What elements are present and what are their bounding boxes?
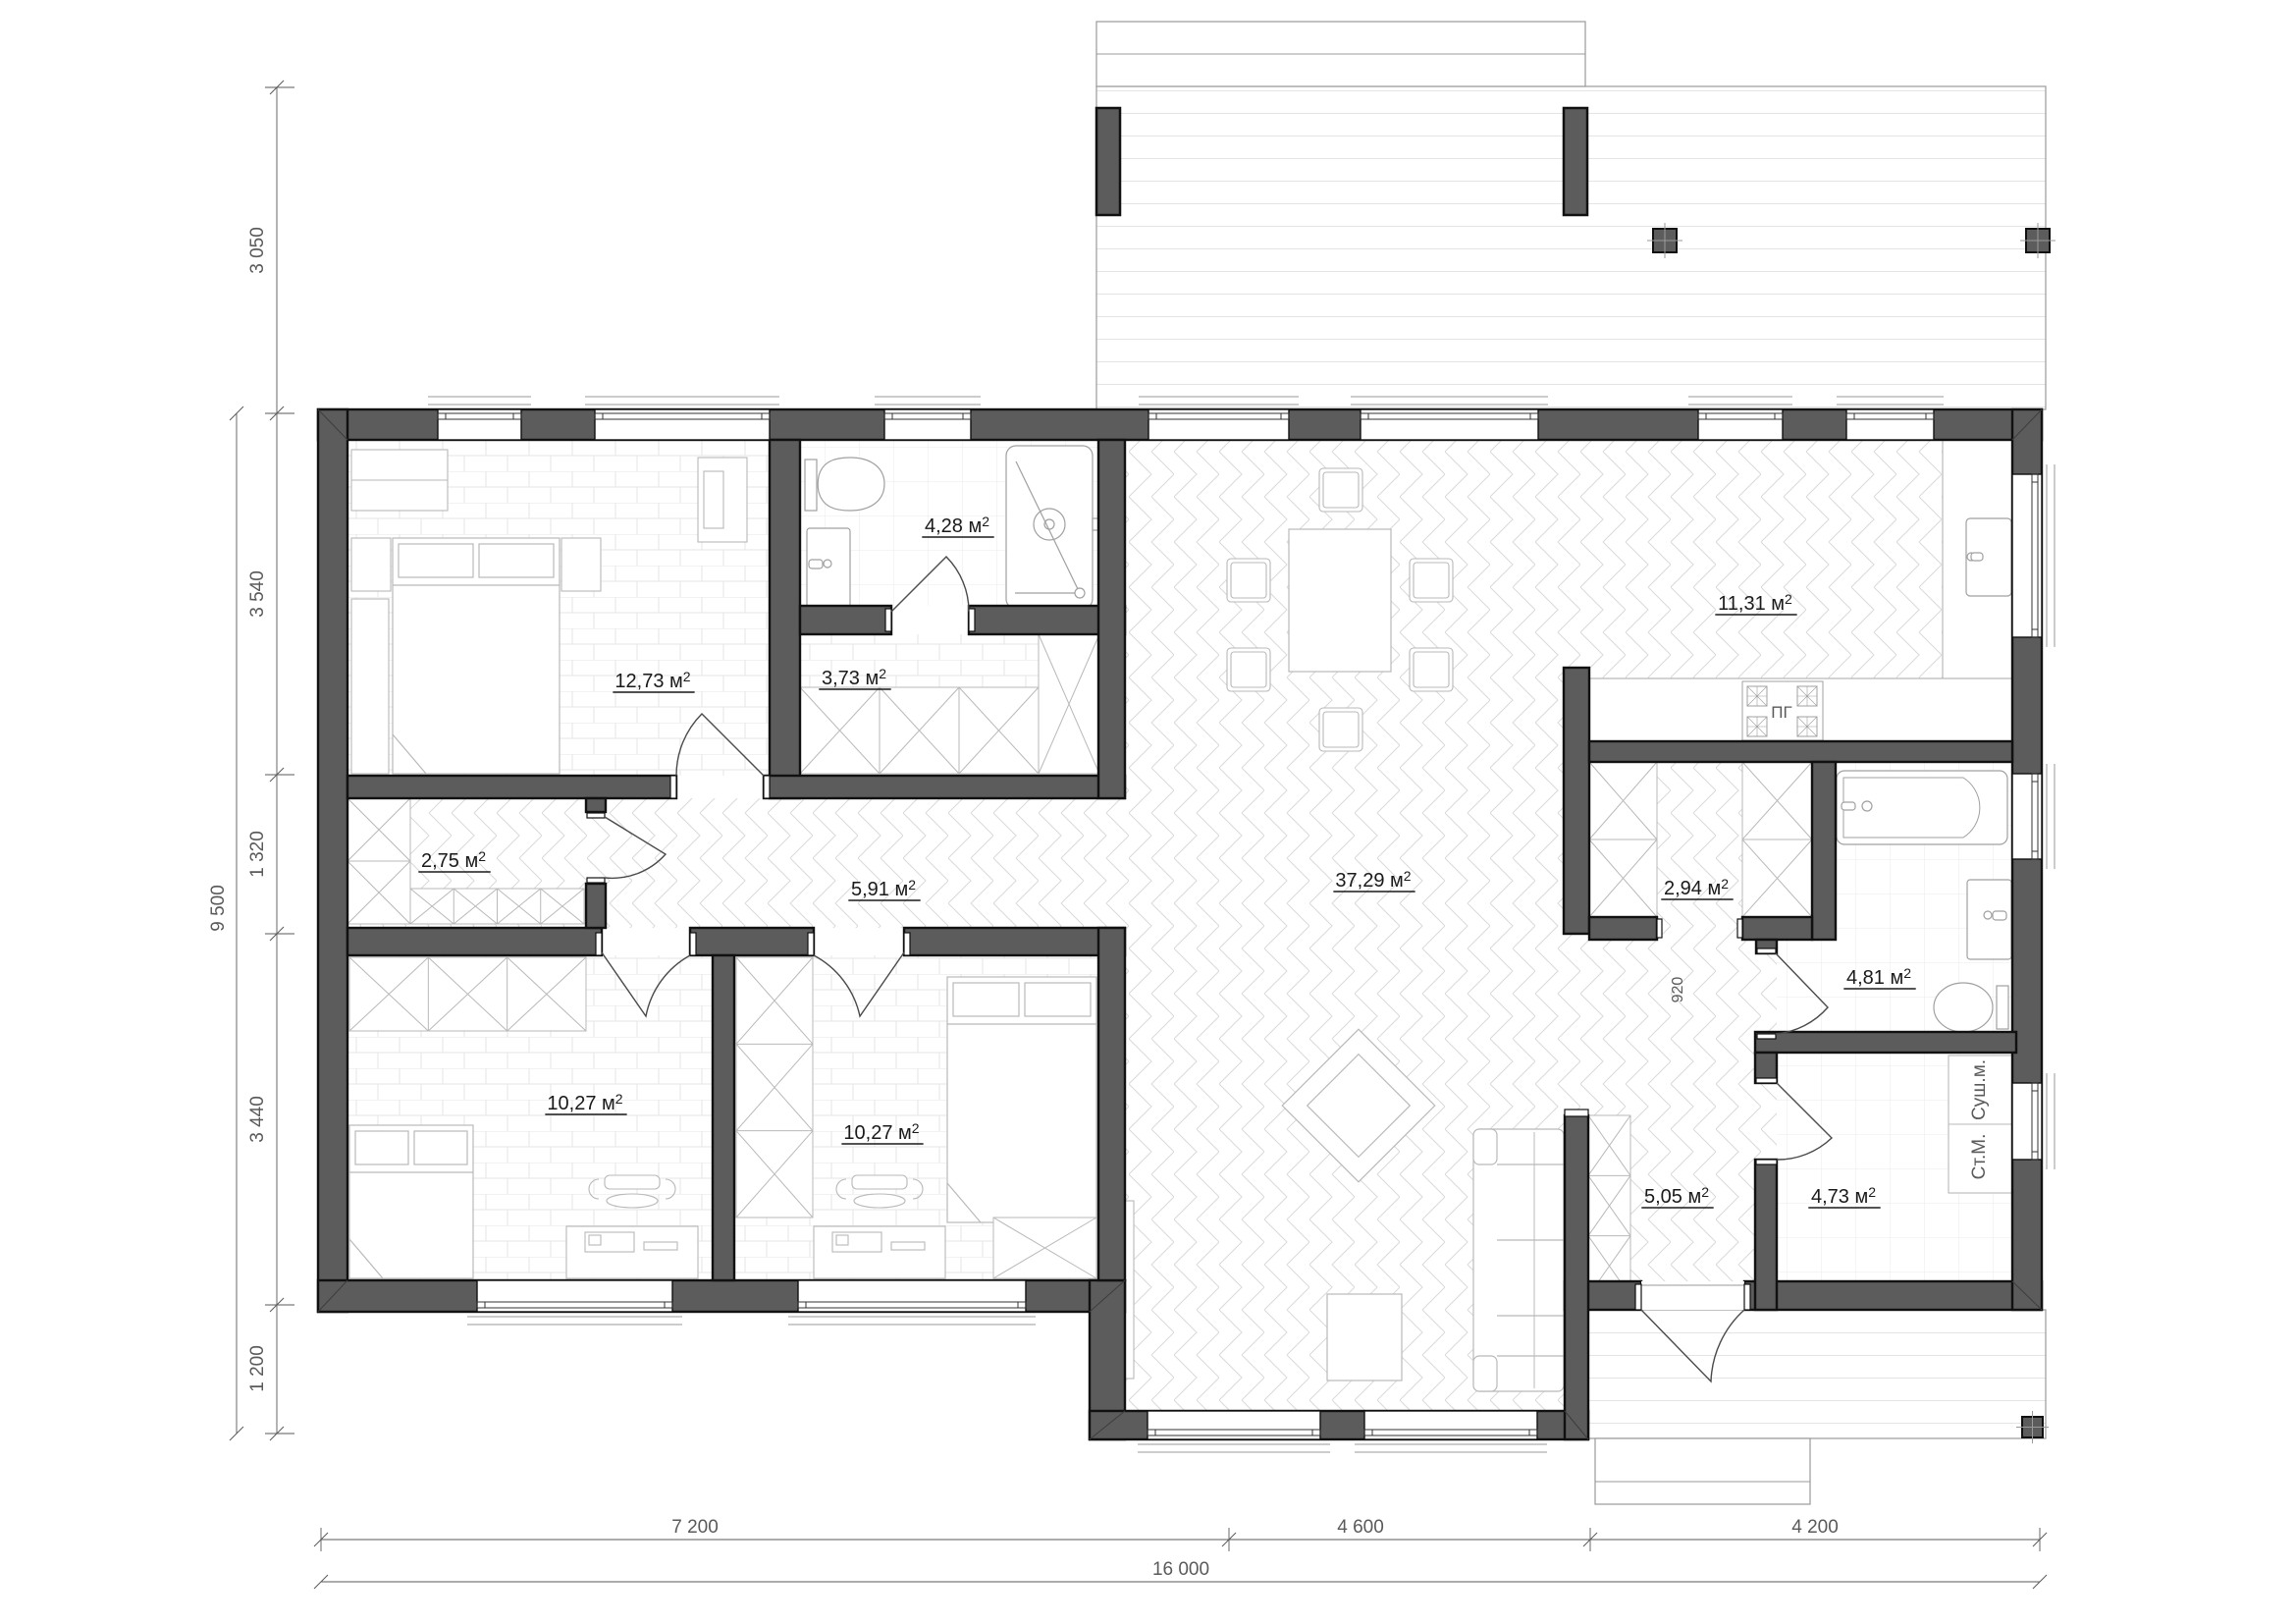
svg-text:3 540: 3 540: [247, 570, 268, 618]
svg-text:37,29 м2: 37,29 м2: [1335, 868, 1411, 892]
svg-text:4 600: 4 600: [1337, 1517, 1384, 1538]
svg-text:1 200: 1 200: [247, 1345, 268, 1392]
svg-text:4,73 м2: 4,73 м2: [1811, 1184, 1876, 1208]
svg-text:10,27 м2: 10,27 м2: [547, 1091, 622, 1114]
svg-text:3 440: 3 440: [247, 1096, 268, 1143]
svg-text:2,94 м2: 2,94 м2: [1664, 876, 1729, 899]
svg-text:3,73 м2: 3,73 м2: [822, 666, 886, 689]
svg-text:16 000: 16 000: [1152, 1559, 1209, 1580]
svg-text:2,75 м2: 2,75 м2: [421, 848, 486, 872]
svg-text:10,27 м2: 10,27 м2: [843, 1120, 919, 1144]
svg-text:12,73 м2: 12,73 м2: [614, 669, 690, 692]
svg-text:4,28 м2: 4,28 м2: [925, 514, 989, 537]
svg-text:4 200: 4 200: [1791, 1517, 1839, 1538]
svg-text:9 500: 9 500: [208, 885, 229, 932]
svg-text:Суш.м.: Суш.м.: [1969, 1059, 1990, 1120]
svg-text:Ст.М.: Ст.М.: [1969, 1134, 1990, 1180]
svg-text:5,05 м2: 5,05 м2: [1644, 1184, 1709, 1208]
svg-text:3 050: 3 050: [247, 227, 268, 274]
svg-text:11,31 м2: 11,31 м2: [1718, 591, 1792, 615]
svg-text:920: 920: [1670, 977, 1686, 1003]
svg-text:1 320: 1 320: [247, 831, 268, 878]
svg-text:7 200: 7 200: [671, 1517, 719, 1538]
svg-text:ПГ: ПГ: [1771, 703, 1791, 722]
svg-text:5,91 м2: 5,91 м2: [851, 877, 916, 900]
svg-text:4,81 м2: 4,81 м2: [1846, 965, 1911, 989]
